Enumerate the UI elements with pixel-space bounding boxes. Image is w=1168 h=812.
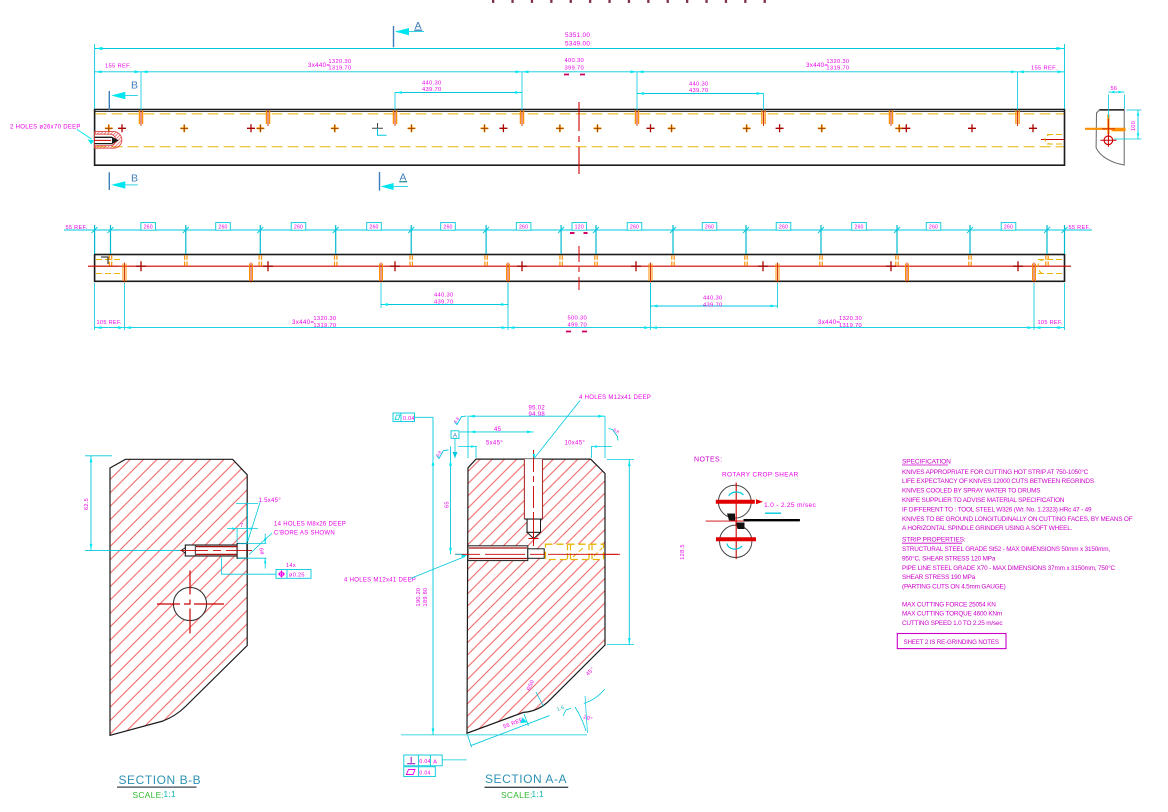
svg-text:KNIVES TO BE GROUND LONGITUDIN: KNIVES TO BE GROUND LONGITUDINALLY ON CU… — [902, 516, 1133, 523]
svg-text:3x440=: 3x440= — [292, 319, 314, 326]
svg-text:260: 260 — [779, 225, 788, 231]
svg-text:55 REF.: 55 REF. — [66, 225, 88, 231]
svg-text:3x440=: 3x440= — [818, 319, 840, 326]
svg-text:C'BORE AS SHOWN: C'BORE AS SHOWN — [274, 531, 335, 537]
svg-text:B: B — [131, 80, 138, 92]
svg-text:155 REF.: 155 REF. — [105, 63, 131, 69]
svg-text:94.98: 94.98 — [529, 412, 546, 418]
svg-text:A: A — [433, 759, 437, 765]
svg-text:14x: 14x — [286, 563, 296, 569]
svg-text:1.5x45°: 1.5x45° — [259, 498, 282, 504]
svg-text:500.30: 500.30 — [568, 316, 588, 322]
svg-text:440.30: 440.30 — [703, 296, 723, 302]
svg-text:A: A — [453, 432, 458, 439]
svg-text:14 HOLES M8x26 DEEP: 14 HOLES M8x26 DEEP — [274, 522, 346, 528]
svg-text:SHEAR STRESS 190 MPa: SHEAR STRESS 190 MPa — [902, 574, 976, 581]
svg-text:260: 260 — [854, 225, 863, 231]
svg-text:CUTTING SPEED 1.0 TO 2.25 m/se: CUTTING SPEED 1.0 TO 2.25 m/sec — [902, 620, 1003, 627]
svg-text:A HORIZONTAL SPINDLE GRINDER U: A HORIZONTAL SPINDLE GRINDER USING A SOF… — [902, 525, 1073, 532]
svg-text:439.70: 439.70 — [434, 299, 454, 305]
svg-text:399.70: 399.70 — [565, 65, 585, 71]
svg-text:105 REF.: 105 REF. — [1038, 320, 1064, 326]
svg-text:439.70: 439.70 — [422, 87, 442, 93]
svg-text:0.04: 0.04 — [419, 771, 430, 777]
svg-text:128.5: 128.5 — [680, 544, 686, 560]
svg-text:440.30: 440.30 — [434, 293, 454, 299]
svg-text:120: 120 — [575, 225, 584, 231]
svg-text:0.04: 0.04 — [419, 759, 430, 765]
svg-text:55 REF.: 55 REF. — [1069, 225, 1091, 231]
svg-text:IF DIFFERENT TO : TOOL STEEL W: IF DIFFERENT TO : TOOL STEEL W326 (Wr. N… — [902, 506, 1092, 513]
svg-text:260: 260 — [443, 225, 452, 231]
svg-text:ROTARY CROP SHEAR: ROTARY CROP SHEAR — [722, 472, 799, 479]
svg-text:1320.30: 1320.30 — [839, 316, 862, 322]
svg-text:260: 260 — [929, 225, 938, 231]
svg-text:3x440=: 3x440= — [806, 62, 828, 69]
svg-text:65: 65 — [445, 501, 451, 508]
svg-text:62.5: 62.5 — [84, 498, 90, 510]
svg-text:190.20: 190.20 — [416, 588, 422, 607]
svg-text:5351.00: 5351.00 — [565, 32, 590, 39]
svg-text:440.30: 440.30 — [422, 81, 442, 87]
svg-text:ø0.25: ø0.25 — [289, 573, 305, 579]
svg-text:950°C, SHEAR STRESS 120 MPa: 950°C, SHEAR STRESS 120 MPa — [902, 554, 996, 562]
svg-text:260: 260 — [630, 225, 639, 231]
svg-text:KNIFE SUPPLIER TO ADVISE MATER: KNIFE SUPPLIER TO ADVISE MATERIAL SPECIF… — [902, 497, 1065, 504]
svg-text:439.70: 439.70 — [703, 302, 723, 308]
svg-text:4 HOLES M12x41 DEEP: 4 HOLES M12x41 DEEP — [344, 578, 416, 584]
svg-text:NOTES:: NOTES: — [694, 457, 722, 464]
svg-text:260: 260 — [218, 225, 227, 231]
svg-text:SCALE:: SCALE: — [501, 790, 533, 800]
svg-text:260: 260 — [369, 225, 378, 231]
svg-text:KNIVES COOLED BY SPRAY WATER T: KNIVES COOLED BY SPRAY WATER TO DRUMS — [902, 488, 1040, 495]
svg-text:1320.30: 1320.30 — [313, 316, 336, 322]
svg-text:1319.70: 1319.70 — [839, 323, 862, 329]
svg-text:5349.00: 5349.00 — [565, 40, 590, 47]
svg-text:189.80: 189.80 — [423, 588, 429, 607]
svg-text:105 REF.: 105 REF. — [97, 320, 123, 326]
svg-text:260: 260 — [705, 225, 714, 231]
svg-text:1:1: 1:1 — [164, 790, 177, 799]
svg-text:MAX CUTTING TORQUE 4600 KNm: MAX CUTTING TORQUE 4600 KNm — [902, 611, 1002, 618]
svg-text:7: 7 — [240, 523, 243, 529]
svg-text:95.02: 95.02 — [529, 406, 546, 412]
svg-text:SECTION A-A: SECTION A-A — [485, 772, 567, 786]
svg-text:STRIP PROPERTIES:: STRIP PROPERTIES: — [902, 537, 966, 544]
svg-text:0.04: 0.04 — [403, 416, 415, 422]
svg-text:1319.70: 1319.70 — [313, 323, 336, 329]
svg-text:3x440=: 3x440= — [308, 62, 330, 69]
svg-text:PIPE LINE STEEL GRADE X70 - MA: PIPE LINE STEEL GRADE X70 - MAX DIMENSIO… — [902, 564, 1116, 572]
svg-text:499.70: 499.70 — [568, 322, 588, 328]
svg-text:LIFE EXPECTANCY OF KNIVES 1200: LIFE EXPECTANCY OF KNIVES 12000 CUTS BET… — [902, 478, 1094, 485]
svg-text:1320.30: 1320.30 — [328, 59, 351, 65]
svg-text:10x45°: 10x45° — [565, 441, 586, 447]
svg-text:STRUCTURAL STEEL GRADE St52 -: STRUCTURAL STEEL GRADE St52 - MAX DIMENS… — [902, 546, 1110, 553]
svg-text:440.30: 440.30 — [689, 81, 709, 87]
svg-text:260: 260 — [1004, 225, 1013, 231]
svg-text:400.30: 400.30 — [565, 58, 585, 64]
svg-text:B: B — [131, 172, 138, 184]
svg-text:(PARTING CUTS ON 4.5mm GAUGE): (PARTING CUTS ON 4.5mm GAUGE) — [902, 584, 1006, 591]
svg-text:ø9: ø9 — [260, 548, 266, 555]
svg-text:155 REF.: 155 REF. — [1031, 66, 1057, 72]
svg-text:SCALE:: SCALE: — [133, 790, 165, 800]
svg-text:1.0 - 2.25 m/sec: 1.0 - 2.25 m/sec — [764, 502, 816, 509]
svg-text:SHEET 2 IS RE-GRINDING NOTES: SHEET 2 IS RE-GRINDING NOTES — [904, 639, 999, 646]
svg-text:260: 260 — [519, 225, 528, 231]
svg-text:260: 260 — [294, 225, 303, 231]
svg-text:2 HOLES ø26x70 DEEP: 2 HOLES ø26x70 DEEP — [10, 124, 81, 130]
svg-text:56: 56 — [1111, 86, 1118, 92]
svg-text:260: 260 — [144, 225, 153, 231]
svg-text:1319.70: 1319.70 — [826, 66, 849, 72]
svg-text:1319.70: 1319.70 — [328, 66, 351, 72]
svg-text:SECTION B-B: SECTION B-B — [119, 773, 202, 787]
svg-text:MAX CUTTING FORCE 25054 KN: MAX CUTTING FORCE 25054 KN — [902, 601, 996, 608]
svg-text:4 HOLES M12x41 DEEP: 4 HOLES M12x41 DEEP — [579, 395, 651, 401]
svg-text:1:1: 1:1 — [532, 790, 545, 799]
svg-text:5x45°: 5x45° — [486, 441, 503, 447]
svg-text:KNIVES APPROPRIATE FOR CUTTING: KNIVES APPROPRIATE FOR CUTTING HOT STRIP… — [902, 468, 1089, 476]
svg-text:100: 100 — [1131, 121, 1137, 131]
svg-text:1320.30: 1320.30 — [826, 59, 849, 65]
svg-text:439.70: 439.70 — [689, 88, 709, 94]
svg-text:SPECIFICATION: SPECIFICATION — [902, 458, 951, 465]
